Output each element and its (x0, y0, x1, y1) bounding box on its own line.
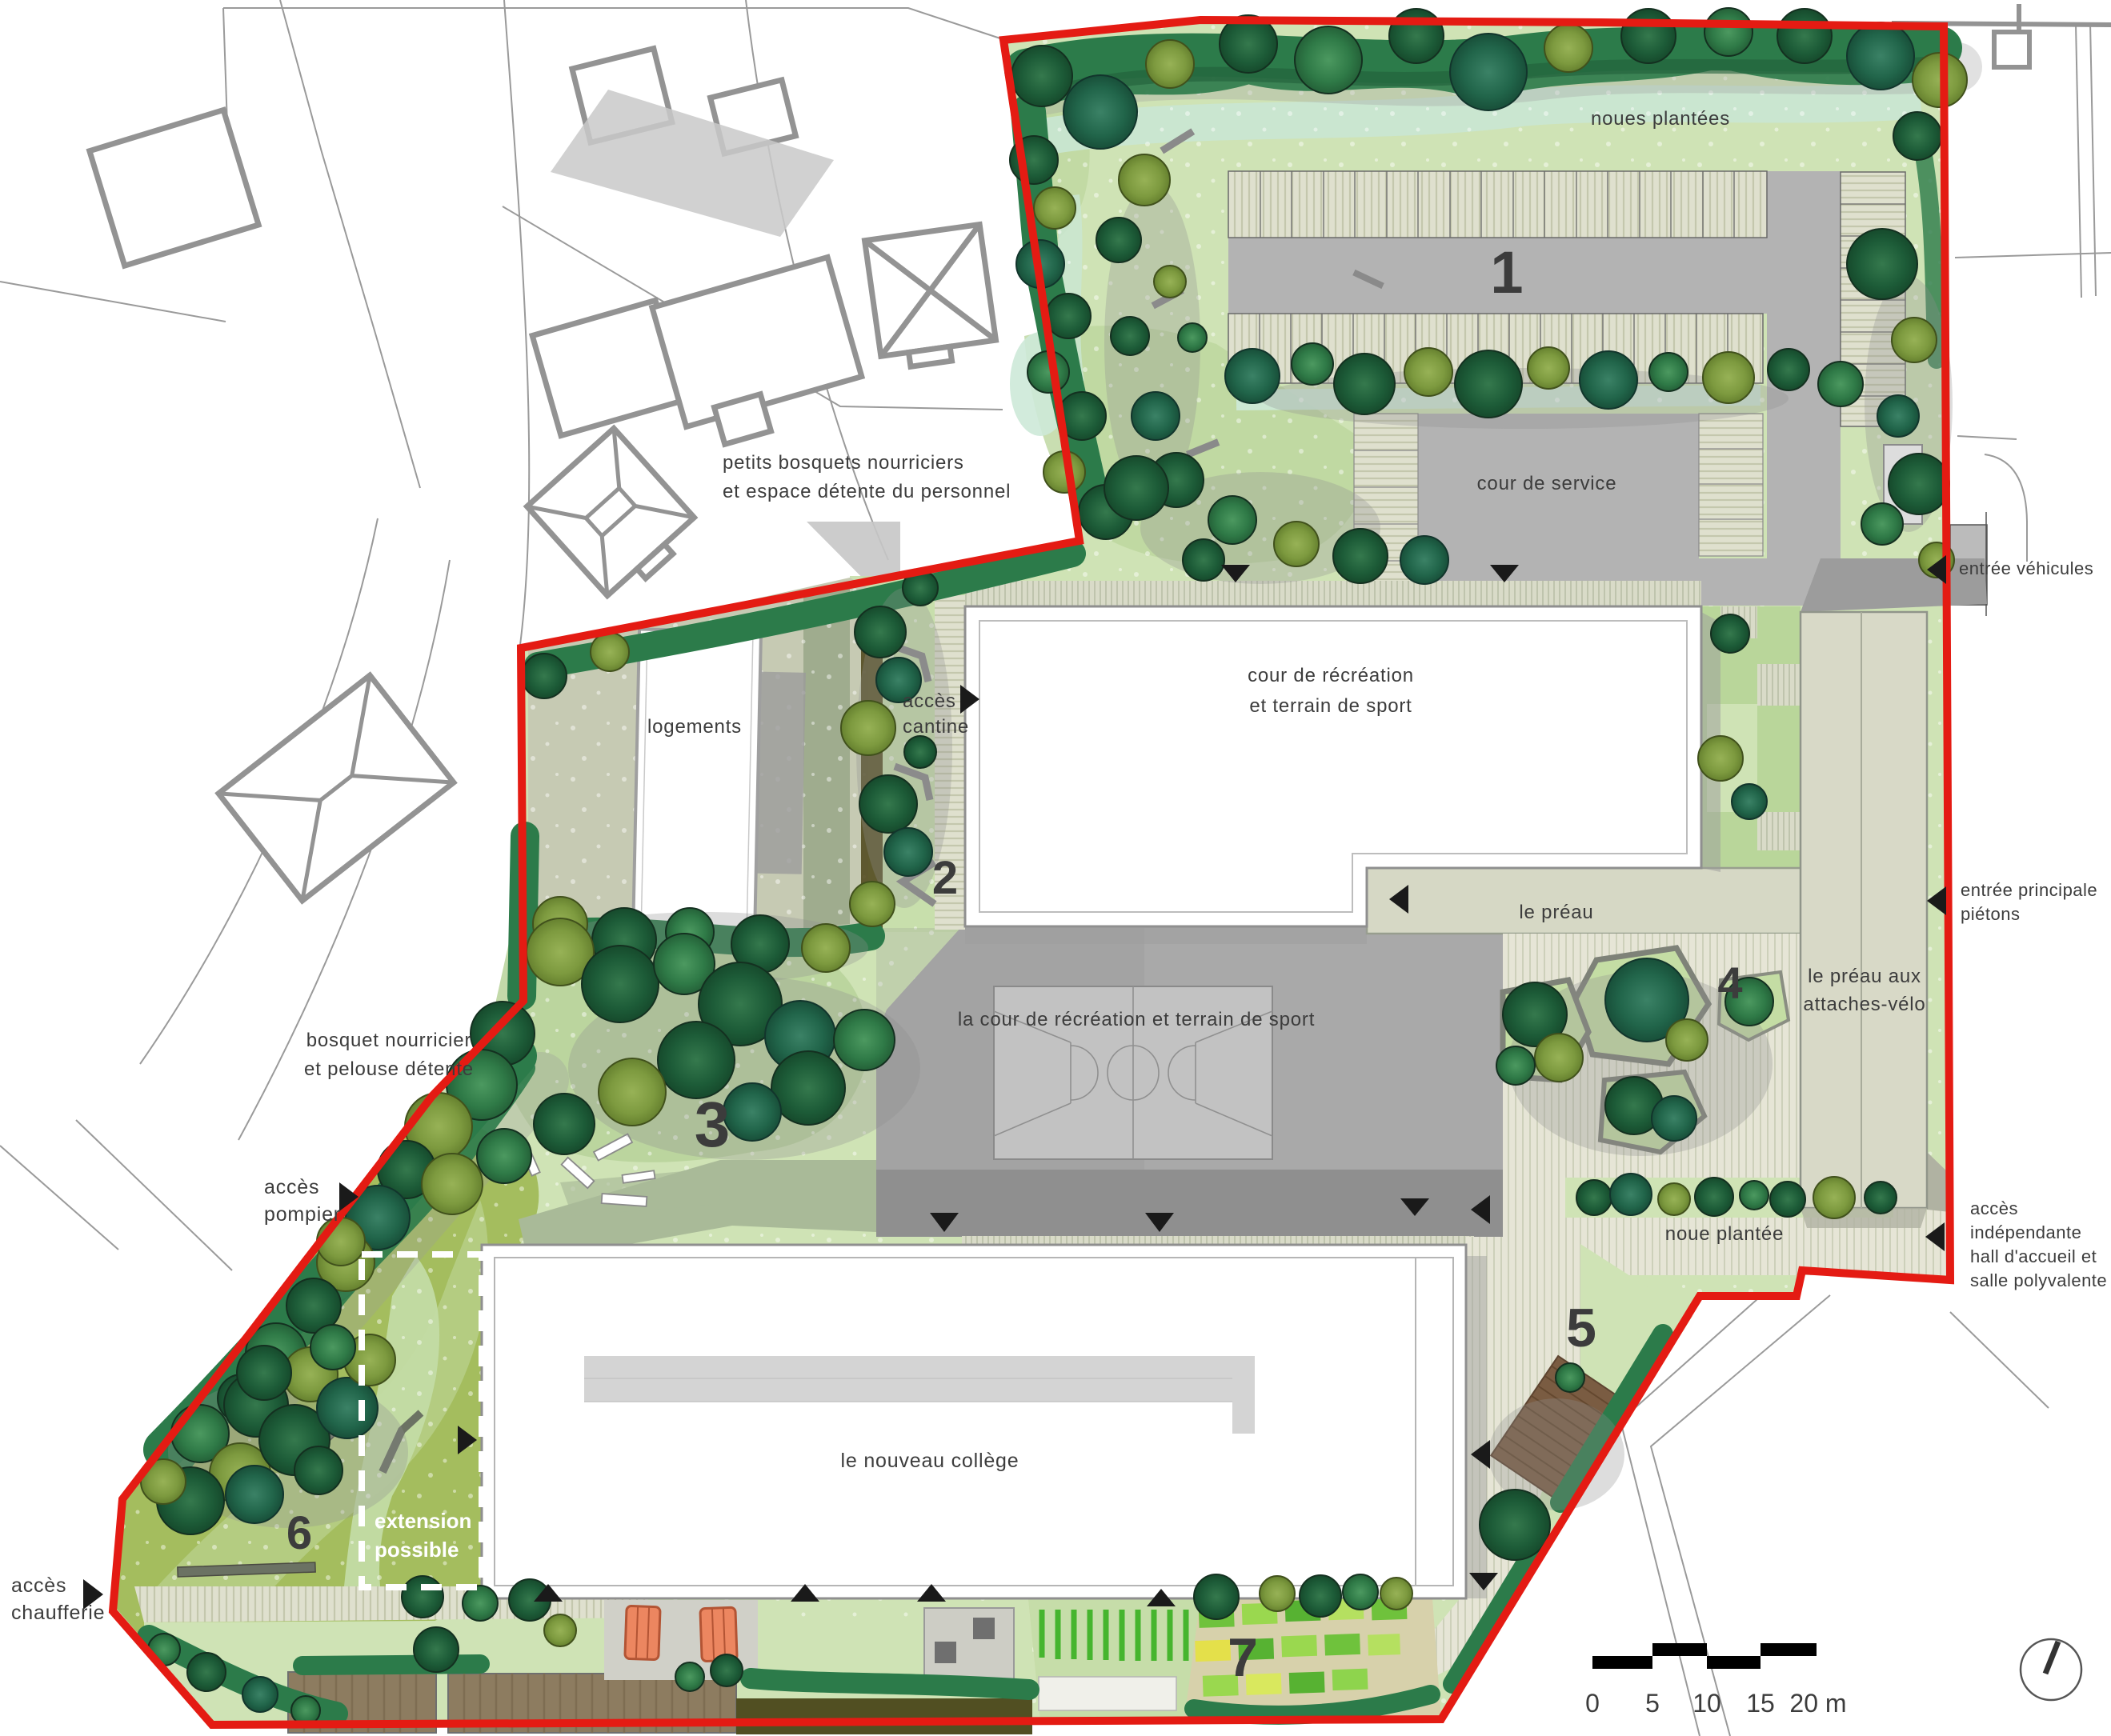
svg-text:extension: extension (375, 1509, 471, 1533)
svg-text:attaches-vélo: attaches-vélo (1803, 994, 1925, 1015)
svg-text:bosquet nourricier: bosquet nourricier (306, 1030, 472, 1051)
svg-text:5: 5 (1645, 1689, 1660, 1718)
svg-text:0: 0 (1585, 1689, 1600, 1718)
svg-text:1: 1 (1490, 239, 1523, 306)
svg-text:10: 10 (1692, 1689, 1721, 1718)
svg-text:6: 6 (286, 1507, 312, 1559)
svg-text:accès: accès (903, 690, 956, 712)
svg-text:logements: logements (647, 716, 742, 738)
svg-text:2: 2 (932, 852, 958, 904)
svg-text:hall d'accueil et: hall d'accueil et (1970, 1246, 2097, 1266)
svg-text:et pelouse détente: et pelouse détente (304, 1058, 474, 1080)
svg-text:possible: possible (375, 1538, 459, 1562)
svg-text:pompier: pompier (264, 1203, 341, 1226)
svg-text:accès: accès (1970, 1198, 2018, 1218)
svg-text:petits bosquets nourriciers: petits bosquets nourriciers (723, 452, 964, 474)
svg-text:accès: accès (264, 1176, 319, 1198)
svg-text:7: 7 (1228, 1627, 1258, 1688)
svg-text:noue plantée: noue plantée (1665, 1223, 1784, 1245)
svg-text:5: 5 (1566, 1298, 1596, 1358)
svg-text:le préau: le préau (1519, 902, 1593, 923)
svg-text:cour de récréation: cour de récréation (1248, 665, 1414, 686)
svg-text:cour de service: cour de service (1477, 473, 1617, 494)
svg-text:4: 4 (1717, 958, 1742, 1008)
svg-text:15: 15 (1746, 1689, 1775, 1718)
svg-text:cantine: cantine (903, 716, 969, 738)
svg-text:entrée véhicules: entrée véhicules (1959, 558, 2093, 578)
svg-text:indépendante: indépendante (1970, 1222, 2081, 1242)
svg-text:le préau aux: le préau aux (1808, 966, 1921, 987)
svg-text:chaufferie: chaufferie (11, 1602, 105, 1624)
svg-text:entrée principale: entrée principale (1961, 880, 2097, 900)
svg-text:3: 3 (695, 1089, 731, 1160)
svg-text:et terrain de sport: et terrain de sport (1249, 695, 1412, 717)
svg-text:noues plantées: noues plantées (1591, 108, 1730, 130)
svg-text:20 m: 20 m (1789, 1689, 1846, 1718)
svg-text:salle polyvalente: salle polyvalente (1970, 1270, 2107, 1290)
svg-text:et espace détente du personnel: et espace détente du personnel (723, 481, 1011, 502)
svg-text:piétons: piétons (1961, 904, 2020, 924)
svg-text:accès: accès (11, 1574, 66, 1597)
svg-text:le nouveau collège: le nouveau collège (841, 1450, 1019, 1472)
svg-text:la cour de récréation et terra: la cour de récréation et terrain de spor… (958, 1009, 1315, 1030)
